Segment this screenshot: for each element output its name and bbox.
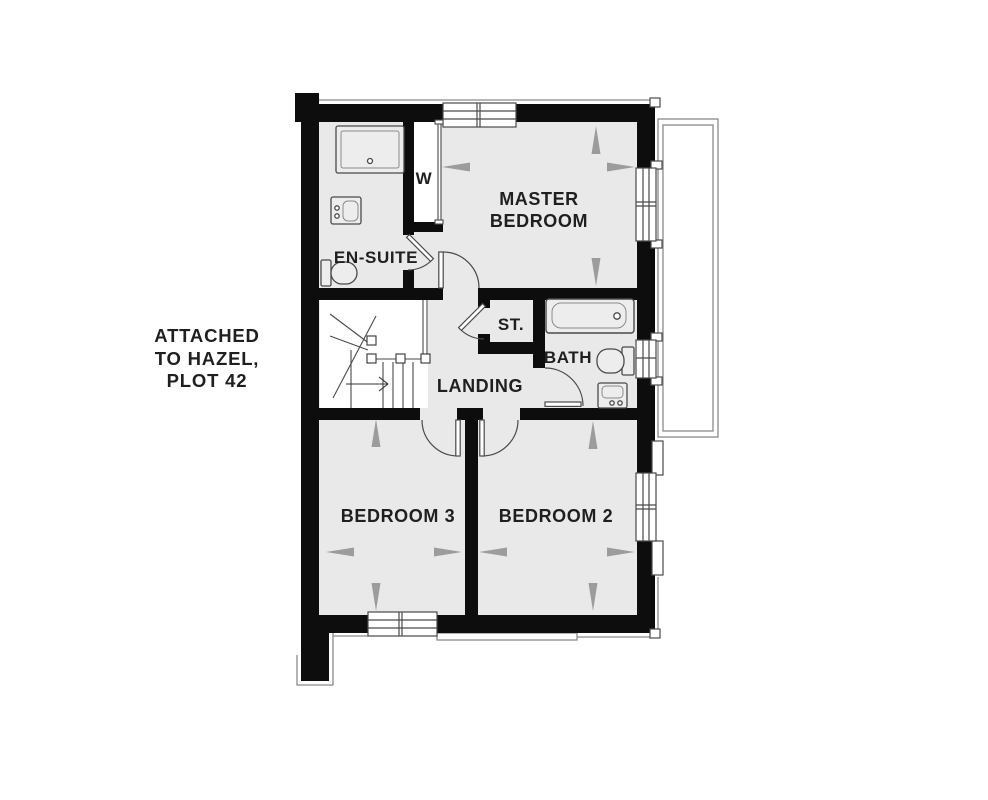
room-label-bath: BATH	[544, 348, 592, 367]
floor-plan-page: MASTER BEDROOM EN-SUITE W ST. BATH LANDI…	[0, 0, 988, 800]
shower-tray	[336, 126, 404, 173]
bath-sink	[598, 383, 627, 408]
room-label-master-line1: MASTER	[499, 189, 579, 209]
room-label-landing: LANDING	[437, 376, 523, 396]
floor-plan: MASTER BEDROOM EN-SUITE W ST. BATH LANDI…	[0, 0, 988, 800]
window-top	[443, 103, 516, 127]
room-label-en-suite: EN-SUITE	[334, 248, 418, 267]
bath-tub	[546, 299, 634, 333]
annotation-line3: PLOT 42	[167, 370, 248, 391]
attached-annotation: ATTACHED TO HAZEL, PLOT 42	[154, 325, 259, 391]
room-label-bedroom3: BEDROOM 3	[341, 506, 455, 526]
bath-toilet	[597, 347, 634, 375]
room-label-wardrobe: W	[416, 169, 433, 188]
window-bottom-bedroom3	[368, 612, 437, 636]
en-suite-sink	[331, 197, 361, 224]
room-label-bedroom2: BEDROOM 2	[499, 506, 613, 526]
room-label-store: ST.	[498, 315, 524, 334]
annotation-line2: TO HAZEL,	[155, 348, 260, 369]
annotation-line1: ATTACHED	[154, 325, 259, 346]
room-label-master-line2: BEDROOM	[490, 211, 588, 231]
canopy-outline	[658, 119, 718, 437]
